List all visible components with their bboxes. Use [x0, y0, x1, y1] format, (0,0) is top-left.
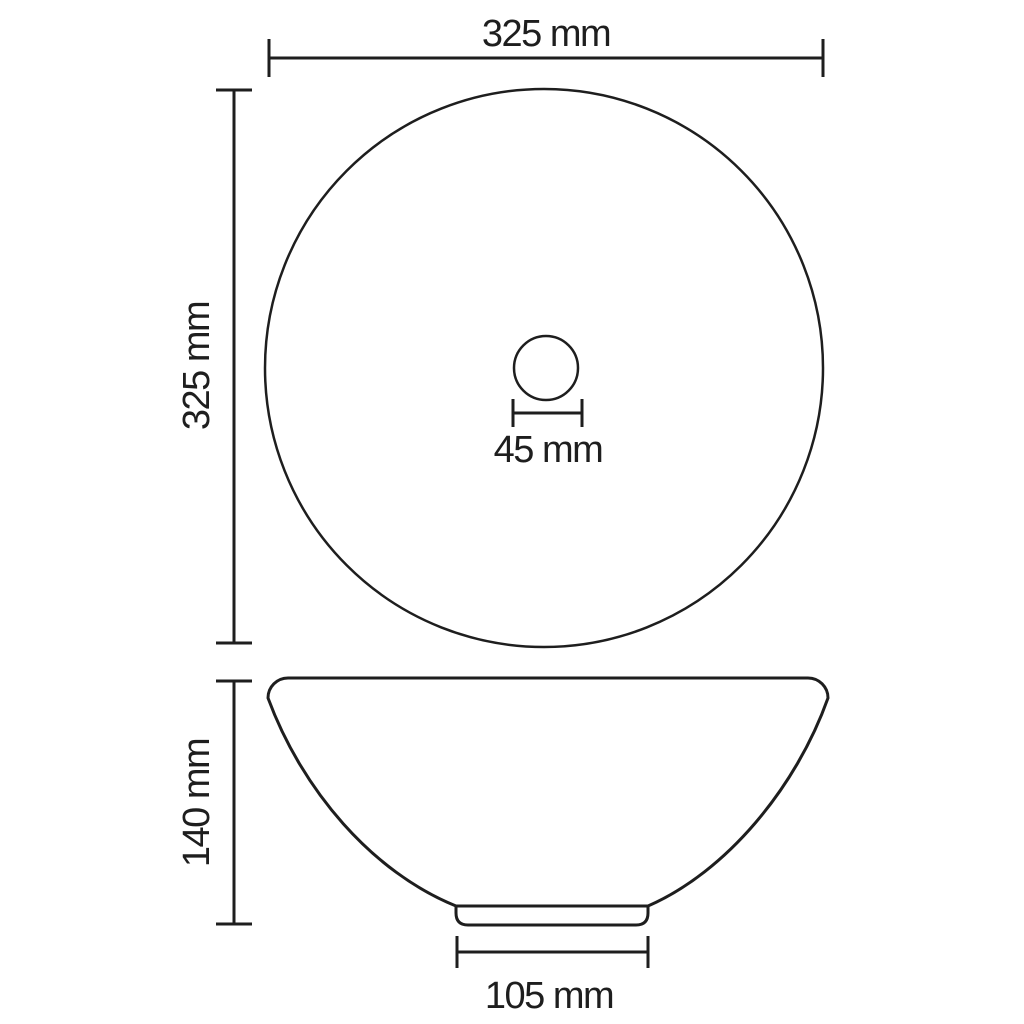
top-width-dimension: 325 mm: [269, 13, 823, 77]
base-width-dimension: 105 mm: [457, 936, 648, 1017]
technical-drawing: 325 mm 325 mm 45 mm 140 mm: [0, 0, 1024, 1024]
basin-rim-circle: [265, 89, 823, 647]
dimension-label-overall-width: 325 mm: [482, 13, 610, 55]
dimension-label-drain-diameter: 45 mm: [494, 429, 603, 471]
dimension-label-overall-depth: 325 mm: [176, 302, 218, 430]
side-height-dimension: 140 mm: [176, 681, 252, 924]
dimension-label-height: 140 mm: [176, 739, 218, 867]
top-depth-dimension: 325 mm: [176, 90, 252, 643]
basin-base-foot: [456, 906, 648, 925]
drawing-canvas: 325 mm 325 mm 45 mm 140 mm: [0, 0, 1024, 1024]
drain-hole-circle: [514, 336, 578, 400]
drain-diameter-dimension: 45 mm: [494, 399, 603, 471]
dimension-label-base-width: 105 mm: [485, 975, 613, 1017]
basin-side-profile: [268, 678, 828, 906]
